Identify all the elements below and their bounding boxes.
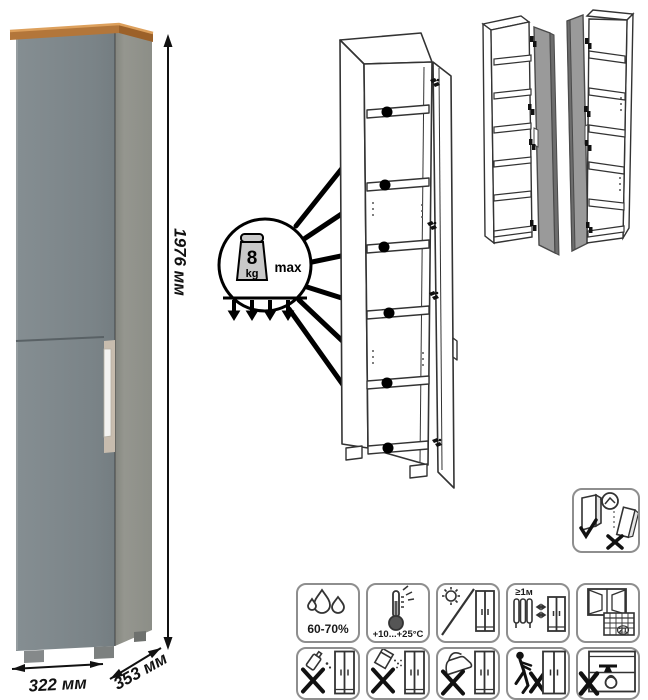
calendar-day: 21 bbox=[619, 626, 627, 635]
open-door bbox=[433, 62, 454, 488]
cabinet-side-panel bbox=[115, 30, 152, 646]
thermometer bbox=[389, 586, 414, 630]
no-overload-icon bbox=[576, 647, 640, 700]
wardrobe bbox=[405, 652, 424, 694]
no-hot-iron-icon bbox=[436, 647, 500, 700]
x-mark bbox=[303, 670, 323, 692]
sun bbox=[442, 587, 460, 605]
door-variant-drawings bbox=[475, 0, 648, 270]
kettlebell bbox=[606, 676, 617, 688]
person-figure bbox=[516, 652, 531, 693]
cabinet-foot bbox=[24, 650, 44, 663]
powder-box bbox=[375, 649, 393, 668]
load-qualifier: max bbox=[274, 260, 302, 275]
temperature-icon: +10...+25°C bbox=[366, 583, 430, 643]
cabinet-render bbox=[10, 24, 153, 663]
iron bbox=[441, 649, 472, 675]
tipping-cabinet bbox=[617, 507, 638, 538]
no-direct-sunlight-icon bbox=[436, 583, 500, 643]
temperature-label: +10...+25°C bbox=[373, 629, 424, 640]
door-left-variant-drawing bbox=[567, 10, 633, 251]
radiator bbox=[514, 599, 532, 628]
wardrobe bbox=[543, 652, 565, 694]
anti-tip-glyph bbox=[574, 490, 638, 551]
no-abrasives-icon bbox=[366, 647, 430, 700]
shelf-load-callout: 8 kg max bbox=[219, 219, 311, 320]
humidity-icon: 60-70% bbox=[296, 583, 360, 643]
wardrobe bbox=[335, 652, 354, 694]
wardrobe bbox=[475, 652, 494, 694]
drip bbox=[326, 662, 329, 665]
cabinet-foot bbox=[410, 464, 427, 478]
dotted-line bbox=[613, 511, 615, 528]
wardrobe bbox=[476, 591, 494, 631]
load-unit: kg bbox=[246, 268, 259, 280]
arrowhead-up bbox=[164, 34, 173, 47]
powder-dots bbox=[394, 660, 402, 669]
x-mark bbox=[608, 536, 622, 548]
x-mark bbox=[443, 672, 463, 694]
width-label: 322 мм bbox=[28, 673, 88, 695]
cabinet-photo: 1976 мм 322 мм 353 мм bbox=[0, 0, 210, 700]
drip bbox=[329, 666, 331, 668]
width-dimension: 322 мм bbox=[12, 661, 103, 696]
shelf-load-diagram: 8 kg max bbox=[210, 10, 480, 545]
distance-label: ≥1м bbox=[515, 587, 533, 598]
cabinet-foot bbox=[346, 446, 362, 460]
ventilation-icon: 21 bbox=[576, 583, 640, 643]
no-pushing-icon bbox=[506, 647, 570, 700]
no-solvents-icon bbox=[296, 647, 360, 700]
door-right-variant-drawing bbox=[483, 16, 559, 255]
heat-distance-icon: ≥1м bbox=[506, 583, 570, 643]
arrowhead-down bbox=[164, 637, 173, 650]
height-label: 1976 мм bbox=[171, 228, 190, 296]
open-window bbox=[588, 589, 626, 615]
depth-label: 353 мм bbox=[110, 649, 171, 694]
cabinet-foot bbox=[94, 646, 114, 659]
open-cabinet-drawing bbox=[340, 33, 457, 488]
anti-tip-icon bbox=[572, 488, 640, 553]
height-dimension: 1976 мм bbox=[164, 34, 190, 650]
bottle bbox=[306, 650, 324, 670]
distance-arrows bbox=[537, 605, 545, 617]
arrowhead-right bbox=[90, 661, 103, 668]
cabinet-foot bbox=[134, 631, 146, 642]
x-mark bbox=[373, 670, 393, 692]
water-drops bbox=[308, 590, 344, 613]
load-value: 8 bbox=[247, 248, 258, 269]
door-handle bbox=[104, 349, 111, 437]
wall-mount-detail bbox=[602, 493, 618, 509]
wardrobe bbox=[548, 597, 565, 631]
door-handle-notch bbox=[453, 338, 457, 360]
humidity-label: 60-70% bbox=[307, 622, 349, 636]
x-mark bbox=[531, 674, 544, 692]
product-info-sheet: 1976 мм 322 мм 353 мм bbox=[0, 0, 648, 700]
depth-dimension: 353 мм bbox=[110, 648, 171, 694]
